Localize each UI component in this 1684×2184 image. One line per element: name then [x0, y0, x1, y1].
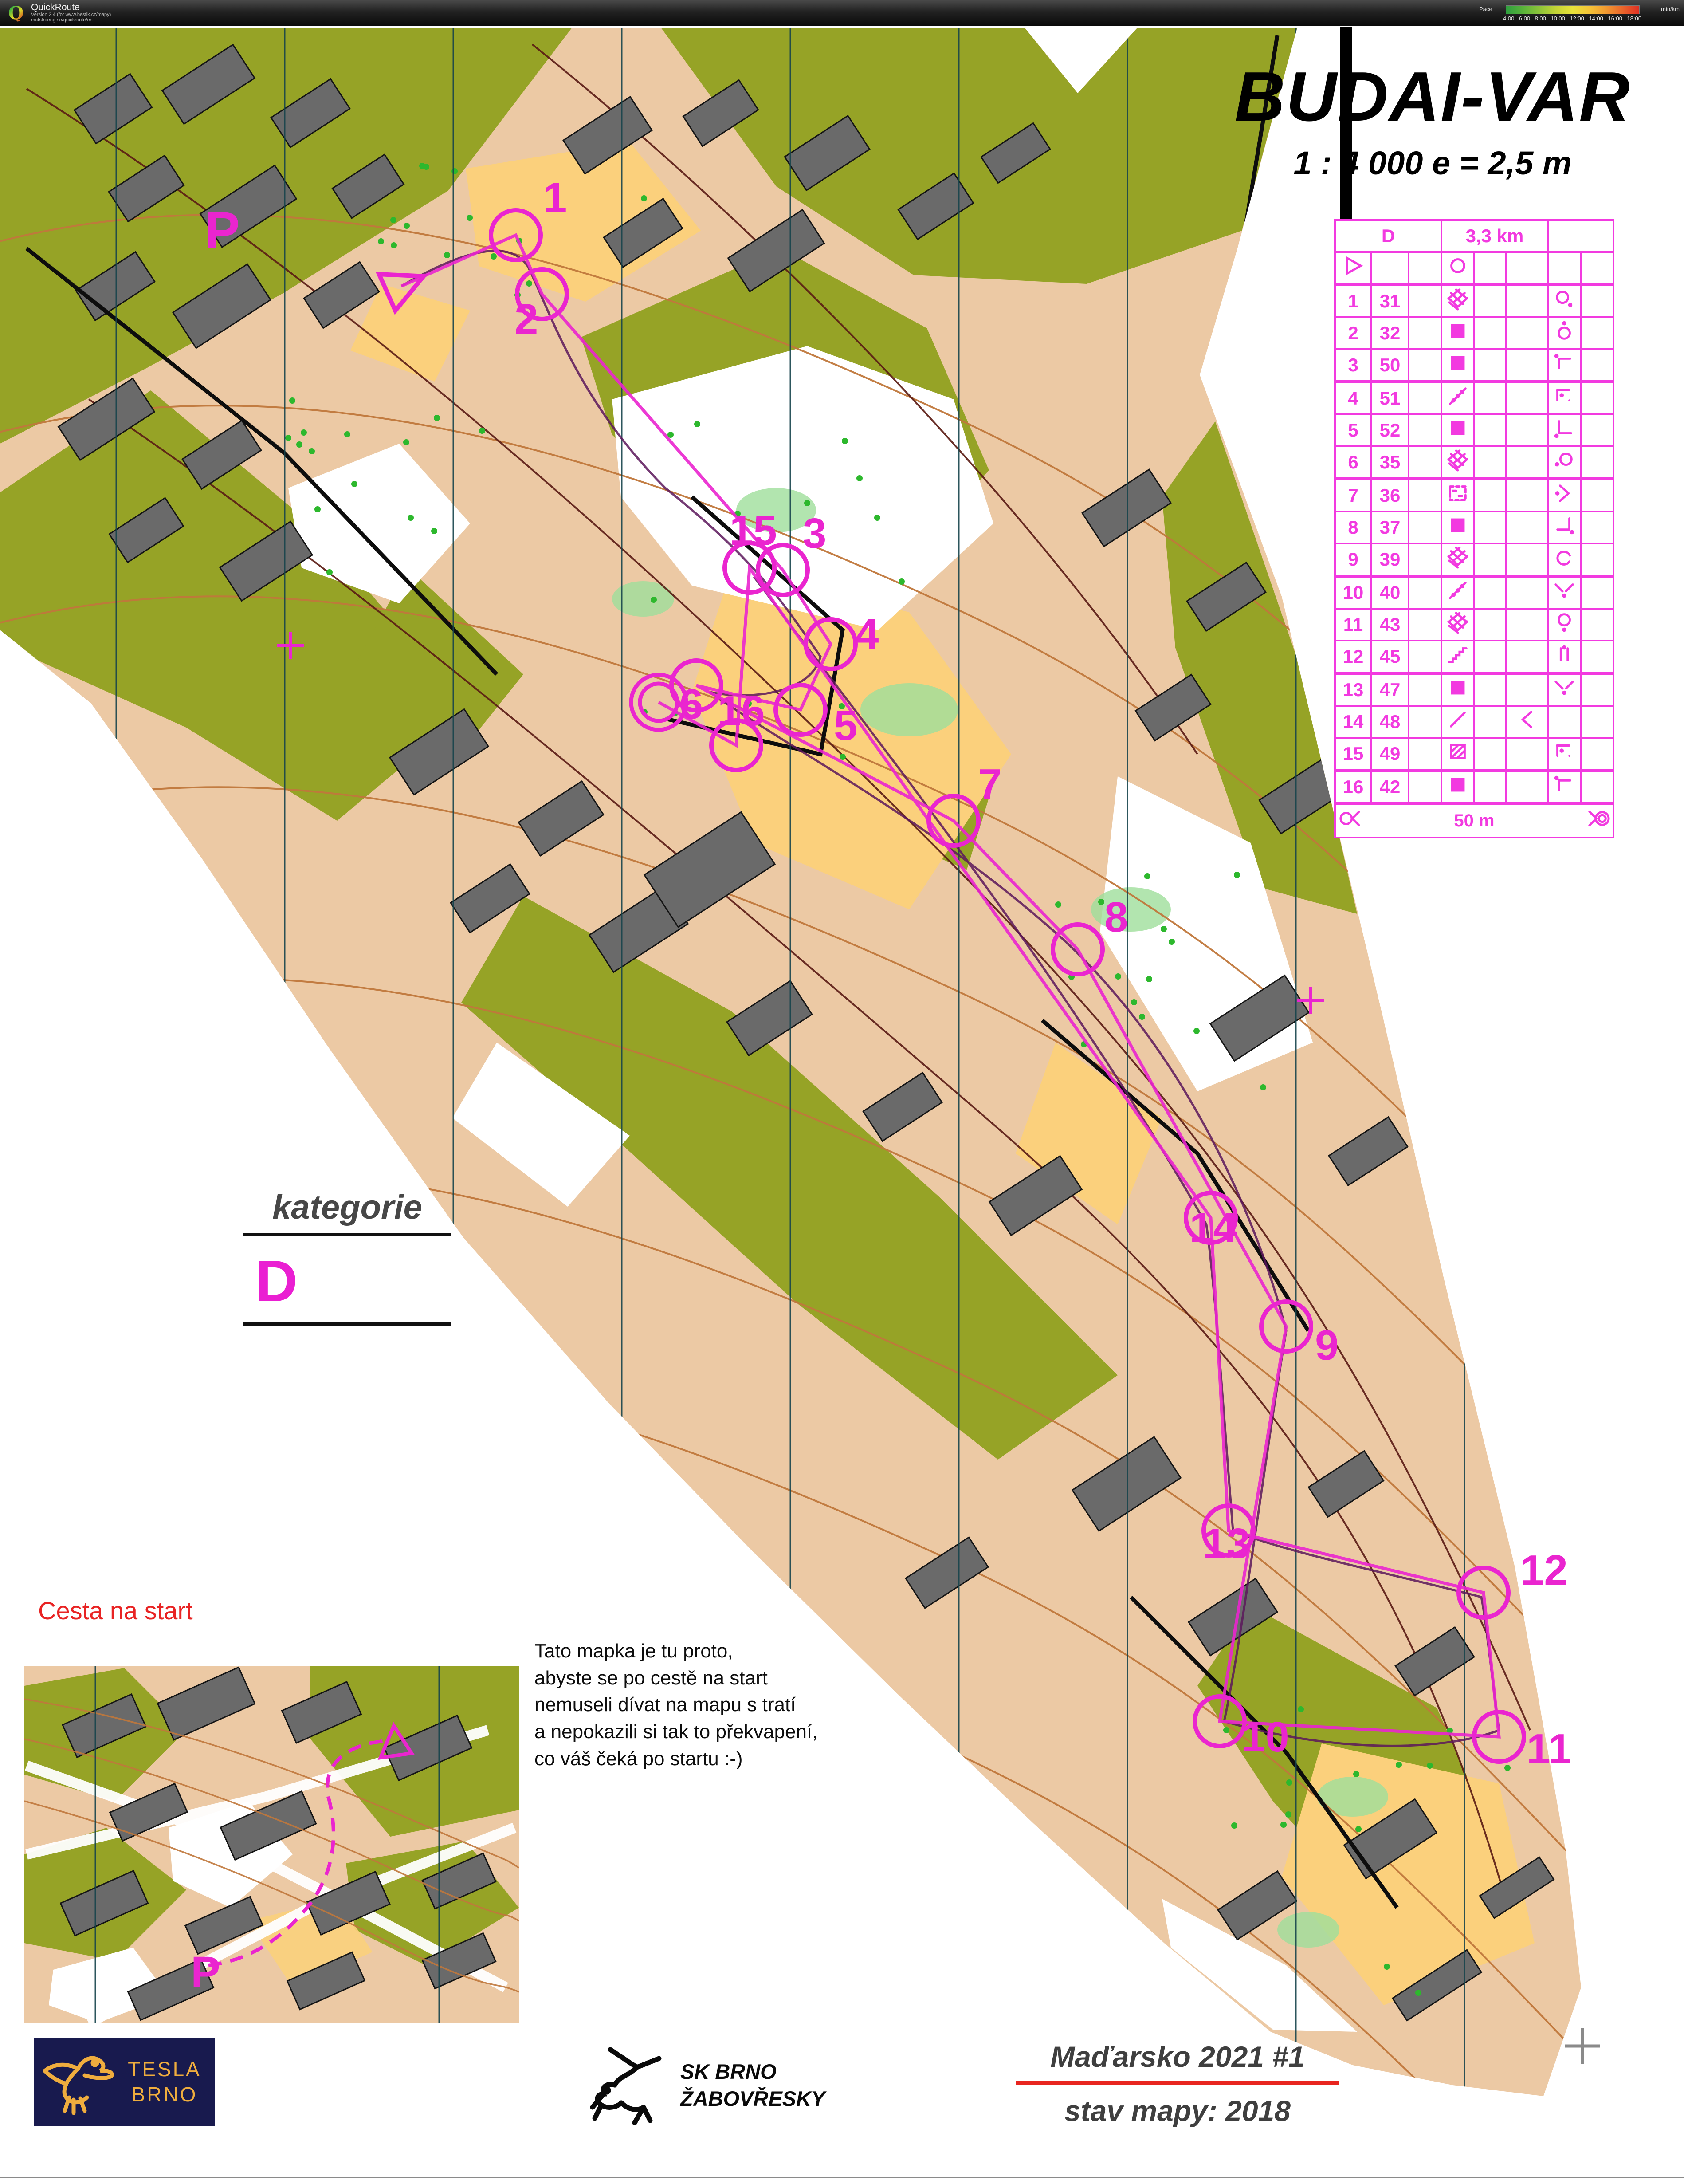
- detail-symbol: [1506, 512, 1548, 543]
- club-line: ŽABOVŘESKY: [680, 2085, 825, 2112]
- control-code: 31: [1371, 285, 1409, 318]
- event-name: Maďarsko 2021 #1: [1016, 2040, 1339, 2074]
- pace-tick: 10:00: [1551, 15, 1565, 22]
- detail-symbol: [1506, 771, 1548, 804]
- map-name: BUDAI-VAR: [1197, 57, 1668, 137]
- start-symbol: [1335, 252, 1371, 285]
- divider: [243, 1233, 451, 1236]
- quickroute-logo-icon: Q: [7, 4, 25, 22]
- control-code: 48: [1371, 706, 1409, 738]
- control-row: 4 51: [1335, 382, 1613, 415]
- detail-symbol: [1506, 479, 1548, 512]
- detail-symbol: [1506, 285, 1548, 318]
- category-block: kategorie D: [243, 1188, 451, 1326]
- position-symbol: [1548, 512, 1581, 543]
- control-row: 6 35: [1335, 446, 1613, 479]
- feature-symbol-building: [1441, 512, 1474, 543]
- position-symbol: [1548, 382, 1581, 415]
- detail-symbol: [1506, 641, 1548, 673]
- control-number: 8: [1335, 512, 1371, 543]
- control-number: 10: [1335, 576, 1371, 609]
- control-row: 15 49: [1335, 738, 1613, 771]
- control-number: 12: [1335, 641, 1371, 673]
- app-name: QuickRoute: [31, 3, 111, 12]
- control-row: 10 40: [1335, 576, 1613, 609]
- start-note: Tato mapka je tu proto, abyste se po ces…: [534, 1638, 871, 1773]
- quickroute-header: Q QuickRoute Version 2.4 (for www.bestik…: [0, 0, 1684, 26]
- pace-tick: 4:00: [1503, 15, 1514, 22]
- feature-symbol-stairs: [1441, 641, 1474, 673]
- control-code: 45: [1371, 641, 1409, 673]
- app-site: matstroeng.se/quickroute/en: [31, 18, 111, 23]
- gray-cross: [1565, 2028, 1600, 2064]
- control-row: 2 32: [1335, 317, 1613, 349]
- inset-map: [24, 1666, 519, 2023]
- detail-symbol: [1506, 349, 1548, 382]
- control-row: 16 42: [1335, 771, 1613, 804]
- control-number: 7: [1335, 479, 1371, 512]
- position-symbol: [1548, 414, 1581, 446]
- course-length: 3,3 km: [1441, 220, 1548, 252]
- note-line: Tato mapka je tu proto,: [534, 1638, 871, 1665]
- map-scale: 1 : 4 000 e = 2,5 m: [1197, 144, 1668, 182]
- position-symbol: [1548, 576, 1581, 609]
- feature-symbol-thicket: [1441, 285, 1474, 318]
- position-symbol: [1548, 446, 1581, 479]
- pace-tick: 6:00: [1519, 15, 1530, 22]
- note-line: abyste se po cestě na start: [534, 1665, 871, 1692]
- control-number: 5: [1335, 414, 1371, 446]
- taped-route-start-icon: [1339, 807, 1362, 835]
- feature-symbol-building: [1441, 349, 1474, 382]
- note-line: a nepokazili si tak to překvapení,: [534, 1719, 871, 1746]
- position-symbol: [1548, 349, 1581, 382]
- position-symbol: [1548, 479, 1581, 512]
- control-number-label: 15: [730, 507, 777, 554]
- control-number-label: 8: [1104, 893, 1128, 941]
- feature-symbol-wall: [1441, 382, 1474, 415]
- control-number-label: 11: [1527, 1725, 1571, 1773]
- control-number: 11: [1335, 609, 1371, 641]
- bird-icon: [38, 2044, 118, 2120]
- position-symbol: [1548, 609, 1581, 641]
- feature-symbol-building: [1441, 317, 1474, 349]
- tesla-line: TESLA: [118, 2057, 211, 2082]
- feature-symbol-building: [1441, 673, 1474, 706]
- control-number: 6: [1335, 446, 1371, 479]
- control-number-label: 4: [855, 610, 879, 658]
- feature-symbol-building: [1441, 771, 1474, 804]
- detail-symbol: [1506, 446, 1548, 479]
- control-code: 42: [1371, 771, 1409, 804]
- control-number: 4: [1335, 382, 1371, 415]
- tesla-brno-logo: TESLA BRNO: [34, 2038, 215, 2126]
- control-number: 15: [1335, 738, 1371, 771]
- pace-gradient-bar: [1506, 5, 1640, 14]
- pace-tick: 8:00: [1535, 15, 1546, 22]
- detail-symbol: [1506, 576, 1548, 609]
- position-symbol: [1548, 285, 1581, 318]
- feature-symbol-canopy: [1441, 738, 1474, 771]
- pace-tick: 18:00: [1627, 15, 1641, 22]
- control-code: 47: [1371, 673, 1409, 706]
- pace-legend: Pace min/km 4:006:008:0010:0012:0014:001…: [1476, 2, 1680, 24]
- sk-brno-zabovresky-logo: SK BRNO ŽABOVŘESKY: [584, 2041, 825, 2129]
- feature-symbol-thicket: [1441, 446, 1474, 479]
- position-symbol: [1548, 543, 1581, 576]
- control-row: 9 39: [1335, 543, 1613, 576]
- detail-symbol: [1506, 673, 1548, 706]
- control-code: 52: [1371, 414, 1409, 446]
- route-to-start-title: Cesta na start: [38, 1596, 193, 1625]
- detail-symbol: [1506, 543, 1548, 576]
- detail-symbol: [1506, 706, 1548, 738]
- map-title-block: BUDAI-VAR 1 : 4 000 e = 2,5 m: [1197, 57, 1668, 182]
- control-code: 43: [1371, 609, 1409, 641]
- control-card-table: D 3,3 km 1 31 2 32 3 50: [1334, 219, 1614, 838]
- control-number: 16: [1335, 771, 1371, 804]
- control-number-label: 7: [978, 760, 1001, 808]
- pace-unit: min/km: [1661, 6, 1680, 12]
- control-code: 36: [1371, 479, 1409, 512]
- feature-symbol-thicket: [1441, 543, 1474, 576]
- control-number: 14: [1335, 706, 1371, 738]
- control-code: 51: [1371, 382, 1409, 415]
- control-row: 7 36: [1335, 479, 1613, 512]
- control-number: 9: [1335, 543, 1371, 576]
- feature-symbol-building: [1441, 414, 1474, 446]
- control-description-sheet: D 3,3 km 1 31 2 32 3 50: [1334, 219, 1614, 838]
- start-feature: [1441, 252, 1474, 285]
- detail-symbol: [1506, 609, 1548, 641]
- control-number-label: 14: [1189, 1204, 1237, 1251]
- detail-symbol: [1506, 414, 1548, 446]
- feature-symbol-wall: [1441, 576, 1474, 609]
- control-code: 40: [1371, 576, 1409, 609]
- control-row: 11 43: [1335, 609, 1613, 641]
- control-row: 13 47: [1335, 673, 1613, 706]
- pace-tick: 12:00: [1570, 15, 1584, 22]
- control-row: 1 31: [1335, 285, 1613, 318]
- control-code: 32: [1371, 317, 1409, 349]
- control-number-label: 10: [1242, 1713, 1289, 1761]
- club-line: SK BRNO: [680, 2058, 825, 2085]
- finish-row: 50 m: [1336, 806, 1613, 836]
- position-symbol: [1548, 771, 1581, 804]
- control-code: 35: [1371, 446, 1409, 479]
- control-row: 8 37: [1335, 512, 1613, 543]
- event-block: Maďarsko 2021 #1 stav mapy: 2018: [1016, 2040, 1339, 2128]
- parking-symbol: P: [205, 201, 240, 260]
- pace-ticks: 4:006:008:0010:0012:0014:0016:0018:00: [1503, 15, 1641, 22]
- position-symbol: [1548, 673, 1581, 706]
- detail-symbol: [1506, 738, 1548, 771]
- finish-distance: 50 m: [1454, 811, 1494, 831]
- tesla-line: BRNO: [118, 2082, 211, 2108]
- detail-symbol: [1506, 317, 1548, 349]
- control-number: 3: [1335, 349, 1371, 382]
- position-symbol: [1548, 738, 1581, 771]
- control-number: 13: [1335, 673, 1371, 706]
- category-value: D: [255, 1247, 451, 1314]
- control-number-label: 16: [718, 687, 765, 735]
- control-number-label: 13: [1203, 1520, 1250, 1567]
- feature-symbol-paved-area: [1441, 479, 1474, 512]
- course-class: D: [1335, 220, 1441, 252]
- control-code: 50: [1371, 349, 1409, 382]
- detail-symbol: [1506, 382, 1548, 415]
- inset-parking-symbol: P: [191, 1948, 220, 1997]
- feature-symbol-thicket: [1441, 609, 1474, 641]
- category-label: kategorie: [243, 1188, 451, 1227]
- note-line: co váš čeká po startu :-): [534, 1746, 871, 1773]
- pace-tick: 14:00: [1589, 15, 1603, 22]
- quickroute-exported-map-page: { "header": { "logo": "Q", "app_name": "…: [0, 0, 1684, 2184]
- control-row: 12 45: [1335, 641, 1613, 673]
- control-number-label: 3: [803, 510, 826, 557]
- position-symbol: [1548, 641, 1581, 673]
- map-state: stav mapy: 2018: [1016, 2094, 1339, 2128]
- divider: [243, 1322, 451, 1326]
- control-code: 39: [1371, 543, 1409, 576]
- frog-icon: [584, 2041, 672, 2129]
- control-number-label: 9: [1315, 1322, 1339, 1369]
- feature-symbol-line: [1441, 706, 1474, 738]
- control-number-label: 5: [834, 702, 857, 749]
- red-divider: [1016, 2081, 1339, 2085]
- note-line: nemuseli dívat na mapu s tratí: [534, 1692, 871, 1719]
- control-code: 49: [1371, 738, 1409, 771]
- control-row: 14 48: [1335, 706, 1613, 738]
- position-symbol: [1548, 706, 1581, 738]
- control-number-label: 12: [1520, 1547, 1568, 1594]
- finish-icon: [1586, 807, 1610, 835]
- position-symbol: [1548, 317, 1581, 349]
- pace-tick: 16:00: [1608, 15, 1622, 22]
- control-code: 37: [1371, 512, 1409, 543]
- control-number: 1: [1335, 285, 1371, 318]
- control-number-label: 2: [514, 295, 538, 343]
- control-number-label: 1: [543, 174, 567, 221]
- control-row: 5 52: [1335, 414, 1613, 446]
- control-number: 2: [1335, 317, 1371, 349]
- pace-label: Pace: [1479, 6, 1492, 12]
- control-row: 3 50: [1335, 349, 1613, 382]
